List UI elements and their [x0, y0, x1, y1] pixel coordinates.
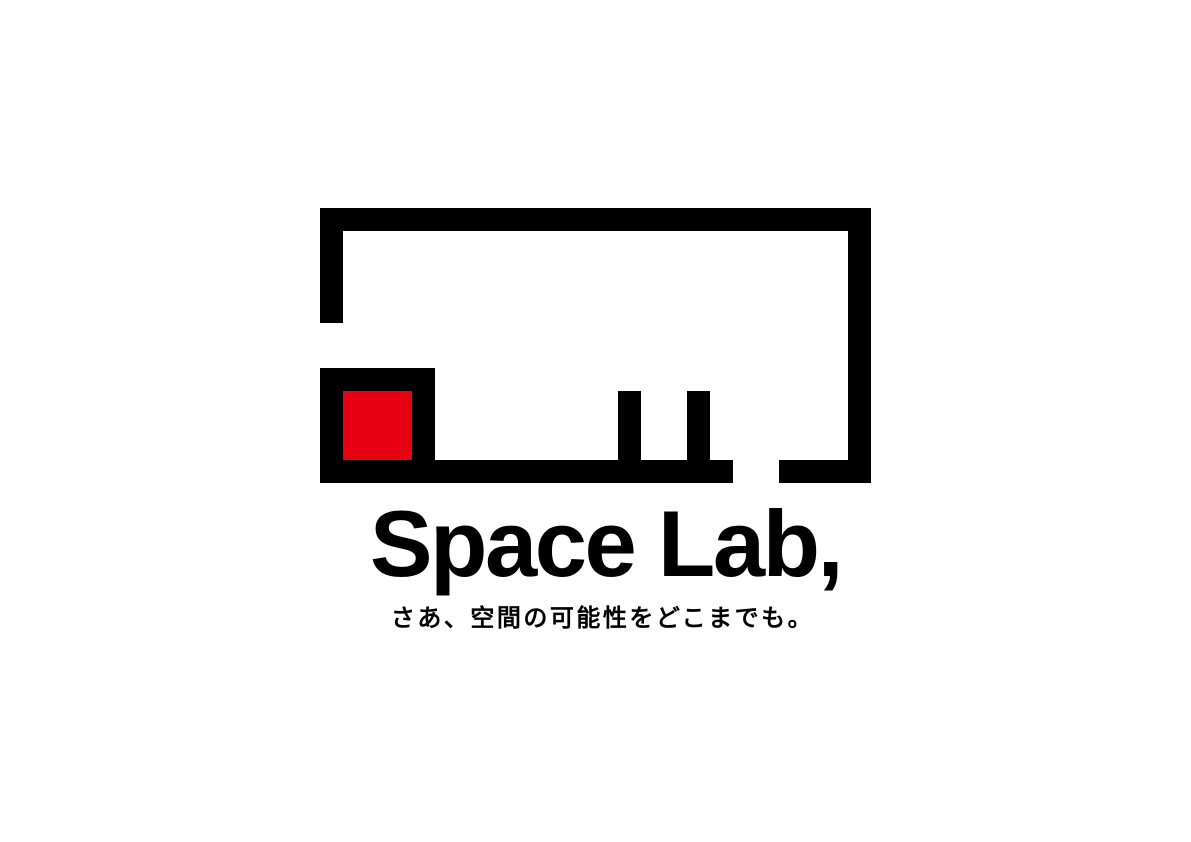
floorplan-top-wall-icon [320, 208, 871, 231]
tagline: さあ、空間の可能性をどこまでも。 [14, 603, 1191, 635]
floorplan-bottom-wall-left-icon [434, 460, 733, 483]
wordmark: Space Lab, [20, 497, 1191, 591]
floorplan-wall-stub-2-icon [687, 391, 710, 460]
floorplan-corner-room-icon [320, 368, 435, 483]
floorplan-wall-stub-1-icon [618, 391, 641, 460]
floorplan-bottom-wall-right-icon [779, 460, 871, 483]
logo-canvas: Space Lab, さあ、空間の可能性をどこまでも。 [0, 0, 1191, 842]
floorplan-logo-icon [0, 0, 1191, 842]
floorplan-right-wall-icon [848, 208, 871, 483]
red-room-square-icon [343, 391, 412, 460]
floorplan-left-wall-icon [320, 208, 343, 323]
